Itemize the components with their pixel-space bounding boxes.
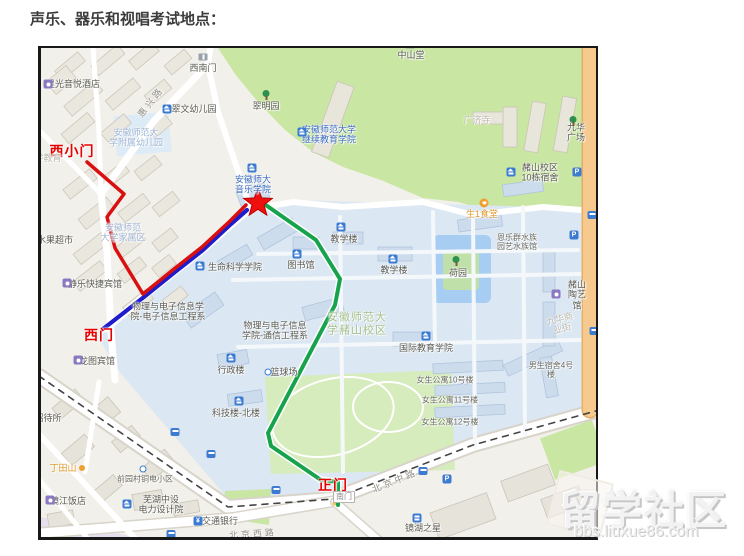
map-label: 北京西路 <box>229 527 278 540</box>
school-icon <box>123 500 132 509</box>
map-label: 翠明园 <box>252 101 279 111</box>
school-icon <box>422 332 431 341</box>
map-label: 惠兴路 <box>136 85 166 120</box>
map-label: 北京中路 <box>371 467 419 495</box>
map-label: 前园村铜电小区 <box>117 474 173 483</box>
tree-icon <box>452 256 461 266</box>
map-label: 国际教育学院 <box>399 343 453 353</box>
bank-icon <box>194 517 203 526</box>
gate-icon <box>199 54 208 61</box>
map-label: 教学楼 <box>380 265 407 275</box>
parking-icon <box>570 231 579 240</box>
hotel-icon <box>74 356 83 365</box>
map-label: 荷园 <box>449 268 467 278</box>
map-label: 安徽师范大 学附属幼儿园 <box>109 128 163 149</box>
school-icon <box>298 128 307 137</box>
map-label: 静乐快捷宾馆 <box>68 279 122 289</box>
bus-icon <box>419 467 428 475</box>
map-label: 女生公寓12号楼 <box>422 417 479 426</box>
tree-icon <box>262 90 271 100</box>
map-label: 招待所 <box>38 413 62 423</box>
school-icon <box>227 354 236 363</box>
parking-icon <box>443 475 452 484</box>
school-icon <box>235 397 244 406</box>
hotel-icon <box>44 80 53 89</box>
bus-icon <box>207 450 216 458</box>
map-label: 安徽师大 音乐学院 <box>235 175 271 196</box>
map-label-layer: 星光音悦酒店西南门中山堂惠兴路翠文幼儿园翠明园安徽师范大 学附属幼儿园西小门学教… <box>41 48 596 537</box>
hotel-icon <box>552 290 561 299</box>
school-icon <box>163 105 172 114</box>
map-label: 西小门 <box>50 143 95 159</box>
map-label: 龙图宾馆 <box>79 356 115 366</box>
map-label: 芜湖中设 电力设计院 <box>138 495 183 516</box>
map-label: 生命科学学院 <box>208 262 262 272</box>
map-label: 西南门 <box>189 63 216 73</box>
school-icon <box>293 250 302 259</box>
tree-icon <box>569 116 578 126</box>
map-label: 生1食堂 <box>466 209 498 219</box>
map-label: 安徽师范大 学赭山校区 <box>327 311 387 336</box>
school-icon <box>337 223 346 232</box>
dot-icon <box>140 466 147 473</box>
map-label: 学教育 <box>38 153 62 163</box>
map-label: 西门 <box>84 327 114 343</box>
map-label: 科技楼-北楼 <box>212 408 260 418</box>
map-label: 女生公寓11号楼 <box>422 395 478 404</box>
map-label: 镜湖之星 <box>405 523 441 533</box>
map-label: 南门 <box>333 491 355 503</box>
map-label: 九华商业街 <box>541 309 580 338</box>
map-label: 男生宿舍4号楼 <box>529 361 574 379</box>
map-label: 赭山陶艺馆 <box>568 279 587 310</box>
map-label: 教学楼 <box>330 234 357 244</box>
hotel-icon <box>63 279 72 288</box>
orange-dot-icon <box>79 465 85 471</box>
campus-map-image: 星光音悦酒店西南门中山堂惠兴路翠文幼儿园翠明园安徽师范大 学附属幼儿园西小门学教… <box>38 46 598 540</box>
bus-icon <box>171 428 180 436</box>
map-label: 交通银行 <box>202 516 238 526</box>
map-label: 正门 <box>318 477 348 493</box>
map-label: 广济寺 <box>463 115 490 125</box>
bus-icon <box>590 327 599 335</box>
map-label: 翠文幼儿园 <box>171 104 216 114</box>
school-icon <box>196 262 205 271</box>
map-label: 水果超市 <box>38 235 73 245</box>
dot-icon <box>265 369 272 376</box>
page-title: 声乐、器乐和视唱考试地点： <box>30 8 225 29</box>
map-label: 物理与电子信息 学院-通信工程系 <box>242 321 308 342</box>
map-label: 行政楼 <box>217 365 244 375</box>
parking-icon <box>573 168 582 177</box>
map-label: 中山堂 <box>397 50 424 60</box>
school-icon <box>507 168 516 177</box>
school-icon <box>248 164 257 173</box>
food-icon <box>480 199 489 208</box>
article-page: 声乐、器乐和视唱考试地点： <box>0 0 744 556</box>
map-label: 安徽师范大学 继续教育学院 <box>302 125 356 146</box>
bus-icon <box>167 530 176 538</box>
gate-icon <box>406 46 415 49</box>
map-label: 恩乐群水族 园艺水族馆 <box>497 233 537 251</box>
map-label: 物理与电子信息学 院-电子信息工程系 <box>131 302 206 323</box>
school-icon <box>389 255 398 264</box>
building-icon <box>413 514 422 523</box>
hotel-icon <box>46 496 55 505</box>
map-label: 安徽师范 大学家属区 <box>100 223 145 244</box>
map-label: 篮球场 <box>270 367 297 377</box>
map-label: 女生公寓10号楼 <box>417 375 474 384</box>
map-label: 图书馆 <box>287 260 314 270</box>
map-label: 丁田山 <box>49 463 76 473</box>
bus-icon <box>588 211 597 219</box>
bus-icon <box>272 486 281 494</box>
map-label: 星光音悦酒店 <box>46 79 100 89</box>
map-label: 镜江饭店 <box>50 496 86 506</box>
map-label: 赭山校区 10栋宿舍 <box>521 163 558 184</box>
